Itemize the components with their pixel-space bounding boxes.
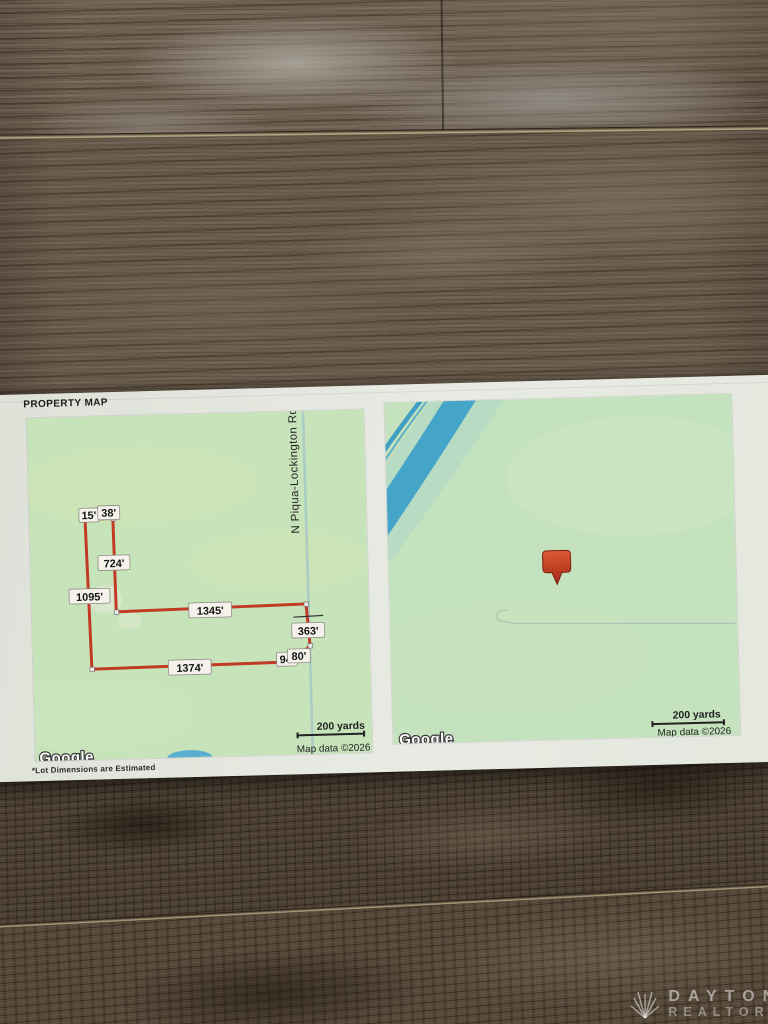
map-attribution: Map data ©2026 — [657, 726, 731, 739]
dimension-label-724: 724' — [98, 555, 130, 571]
lot-dimensions-footnote: *Lot Dimensions are Estimated — [32, 763, 156, 775]
dimension-label-363: 363' — [292, 622, 325, 638]
google-logo: Google — [399, 731, 454, 745]
left-map-panel-lot-dimensions: N Piqua-Lockington Rd 15' 38' — [26, 408, 374, 762]
page-title: PROPERTY MAP — [23, 397, 108, 410]
svg-text:38': 38' — [101, 507, 116, 519]
svg-text:1095': 1095' — [76, 591, 104, 604]
scale-label: 200 yards — [673, 709, 722, 721]
svg-text:15': 15' — [81, 510, 96, 522]
svg-text:80': 80' — [291, 651, 306, 663]
dimension-label-1345: 1345' — [189, 602, 232, 618]
scale-label: 200 yards — [317, 721, 366, 733]
dimension-label-1374: 1374' — [168, 659, 211, 675]
svg-text:363': 363' — [298, 625, 320, 638]
printed-property-map-page: PROPERTY MAP N Piqua-Lockington Rd — [0, 374, 768, 782]
google-logo: Google — [39, 750, 94, 763]
wood-plank-background-top — [0, 0, 768, 427]
watermark-line2: REALTORS — [668, 1005, 768, 1019]
realtor-tree-logo-icon — [629, 986, 661, 1020]
svg-text:724': 724' — [103, 558, 125, 571]
wood-plank — [0, 0, 768, 135]
right-map-panel-location: Google 200 yards Map data ©2026 — [383, 393, 741, 745]
dimension-label-1095: 1095' — [69, 588, 110, 604]
map-attribution: Map data ©2026 — [297, 742, 371, 755]
dimension-label-80: 80' — [287, 649, 310, 664]
dimension-label-15: 15' — [79, 508, 99, 522]
dimension-label-38: 38' — [98, 505, 120, 520]
photo-property-map-on-wood: PROPERTY MAP N Piqua-Lockington Rd — [0, 0, 768, 1024]
svg-text:1345': 1345' — [197, 605, 225, 618]
dayton-realtors-watermark: DAYTON REALTORS — [629, 986, 768, 1020]
svg-text:1374': 1374' — [176, 662, 204, 675]
watermark-line1: DAYTON — [668, 988, 768, 1005]
